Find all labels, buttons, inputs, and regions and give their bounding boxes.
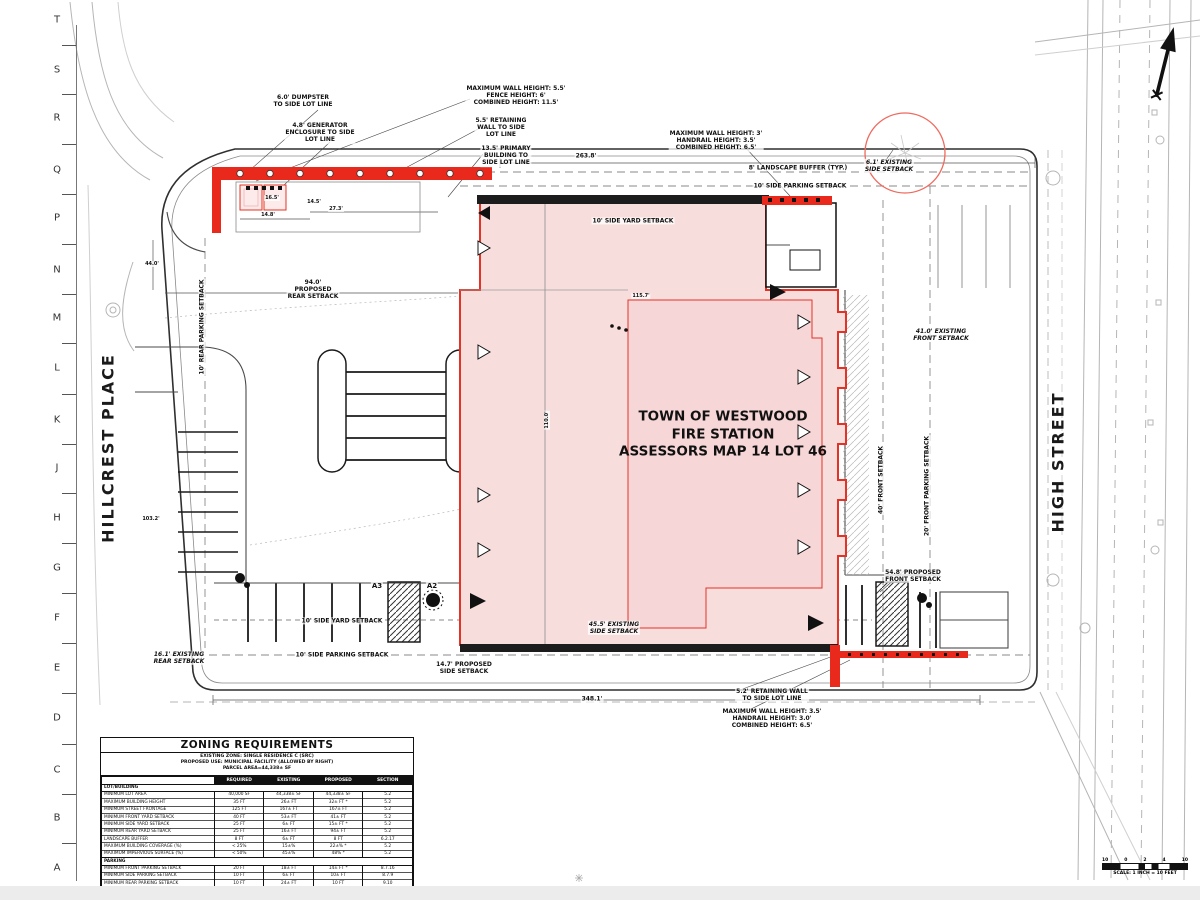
zoning-cell: 32± FT *: [313, 799, 363, 806]
zoning-requirements-table: ZONING REQUIREMENTS EXISTING ZONE: SINGL…: [100, 737, 414, 900]
ruler-letter: K: [54, 415, 61, 426]
zoning-cell: 6± FT: [264, 821, 314, 828]
ruler-tick: [62, 343, 76, 344]
ruler-tick: [62, 843, 76, 844]
scale-tick: 0: [1124, 858, 1127, 863]
zoning-cell: 14± FT *: [313, 865, 363, 872]
ruler-tick: [62, 294, 76, 295]
scale-tick: 10: [1182, 858, 1188, 863]
zoning-cell: 8 FT: [214, 836, 264, 843]
zoning-table-title: ZONING REQUIREMENTS: [101, 738, 413, 753]
zoning-cell: MINIMUM STREET FRONTAGE: [102, 806, 215, 813]
zoning-cell: MINIMUM LOT AREA: [102, 791, 215, 798]
ruler-letter: E: [54, 663, 60, 674]
zoning-cell: MINIMUM FRONT PARKING SETBACK: [102, 865, 215, 872]
ruler-tick: [62, 794, 76, 795]
zoning-cell: 5.2: [363, 791, 413, 798]
zoning-cell: 6± FT: [264, 872, 314, 879]
top-wall: [477, 195, 769, 204]
existing-building-outline: [628, 300, 822, 628]
building-label: TOWN OF WESTWOOD FIRE STATION ASSESSORS …: [593, 409, 853, 462]
ruler-letter: Q: [53, 165, 61, 176]
zoning-cell: 10 FT: [214, 872, 264, 879]
zoning-cell: MINIMUM FRONT YARD SETBACK: [102, 814, 215, 821]
zoning-cell: 5.2: [363, 843, 413, 850]
ruler-letter: R: [54, 113, 61, 124]
ruler-tick: [62, 543, 76, 544]
building-label-line2: FIRE STATION: [593, 426, 853, 444]
zoning-column-header: [102, 776, 215, 784]
zoning-cell: 5.2: [363, 814, 413, 821]
ruler-tick: [62, 94, 76, 95]
zoning-cell: 18± FT: [264, 865, 314, 872]
zoning-cell: 167± FT: [264, 806, 314, 813]
ruler-tick: [62, 394, 76, 395]
ruler-tick: [62, 444, 76, 445]
zoning-cell: 6.2.17: [363, 836, 413, 843]
zoning-table-header: REQUIREDEXISTINGPROPOSEDSECTION: [102, 776, 413, 784]
zoning-cell: 53± FT: [264, 814, 314, 821]
ruler-letter: D: [53, 713, 61, 724]
bottom-wall: [460, 644, 838, 652]
zoning-cell: MINIMUM SIDE YARD SETBACK: [102, 821, 215, 828]
ruler-tick: [62, 643, 76, 644]
building-label-line1: TOWN OF WESTWOOD: [593, 409, 853, 427]
zoning-cell: 20 FT: [214, 865, 264, 872]
ruler-letter: H: [53, 513, 61, 524]
ruler-tick: [62, 144, 76, 145]
scale-tick: 4: [1163, 858, 1166, 863]
scale-tick: 10: [1102, 858, 1108, 863]
zoning-cell: 5.2: [363, 806, 413, 813]
zoning-cell: 8.7.9: [363, 872, 413, 879]
red-retaining-wall-bottomright: [830, 645, 968, 687]
zoning-cell: 16± FT: [264, 828, 314, 835]
scale-bar-graphic: [1102, 863, 1188, 870]
ruler-letter: L: [54, 363, 60, 374]
ruler-letter: B: [54, 813, 61, 824]
sheet-edge-strip: [0, 886, 1200, 900]
zoning-cell: 40 FT: [214, 814, 264, 821]
ruler-letter: S: [54, 65, 60, 76]
zoning-cell: 35 FT: [214, 799, 264, 806]
red-retaining-wall-topright: [762, 196, 832, 205]
ruler-letter: A: [54, 863, 61, 874]
zoning-cell: LANDSCAPE BUFFER: [102, 836, 215, 843]
ruler-tick: [62, 593, 76, 594]
north-arrow-icon: [1148, 25, 1181, 101]
zoning-cell: 48% *: [313, 850, 363, 857]
zoning-cell: MINIMUM SIDE PARKING SETBACK: [102, 872, 215, 879]
zoning-table-body: LOT/BUILDINGMINIMUM LOT AREA40,000 SF44,…: [102, 784, 413, 900]
zoning-cell: 5.2: [363, 850, 413, 857]
zoning-cell: 25 FT: [214, 828, 264, 835]
ruler-line: [76, 25, 77, 881]
site-plan-sheet: TSRQPNMLKJHGFEDCBA HILLCREST PLACE HIGH …: [0, 0, 1200, 900]
zoning-cell: 26± FT: [264, 799, 314, 806]
zoning-cell: 5.2: [363, 799, 413, 806]
zoning-column-header: REQUIRED: [214, 776, 264, 784]
zoning-cell: 15± FT *: [313, 821, 363, 828]
ruler-letter: J: [56, 463, 59, 474]
ruler-tick: [62, 744, 76, 745]
zoning-subtitle-line: PARCEL AREA=44,338± SF: [101, 766, 413, 772]
scale-tick: 2: [1143, 858, 1146, 863]
zoning-table-subtitle: EXISTING ZONE: SINGLE RESIDENCE C (SRC)P…: [101, 753, 413, 776]
zoning-cell: MAXIMUM BUILDING COVERAGE (%): [102, 843, 215, 850]
ruler-letter: P: [54, 213, 60, 224]
zoning-section-header: LOT/BUILDING: [102, 784, 413, 791]
ruler-tick: [62, 45, 76, 46]
ruler-tick: [62, 693, 76, 694]
zoning-section-header: PARKING: [102, 858, 413, 865]
zoning-cell: 94± FT: [313, 828, 363, 835]
hillcrest-road-lines: [70, 2, 174, 705]
ruler-tick: [62, 194, 76, 195]
zoning-column-header: PROPOSED: [313, 776, 363, 784]
zoning-cell: 5.2: [363, 828, 413, 835]
zoning-cell: 8.7.16: [363, 865, 413, 872]
zoning-cell: MAXIMUM IMPERVIOUS SURFACE (%): [102, 850, 215, 857]
ruler-letter: T: [54, 15, 60, 26]
street-label-hillcrest: HILLCREST PLACE: [99, 353, 118, 543]
ruler-letter: F: [54, 613, 60, 624]
building-label-line3: ASSESSORS MAP 14 LOT 46: [593, 444, 853, 462]
zoning-cell: 8 FT: [313, 836, 363, 843]
zoning-column-header: SECTION: [363, 776, 413, 784]
generator-pad: [236, 182, 420, 232]
zoning-cell: 167± FT: [313, 806, 363, 813]
scale-bar: 1002410 SCALE: 1 INCH = 10 FEET: [1102, 858, 1188, 876]
zoning-cell: 44,338± SF: [313, 791, 363, 798]
zoning-cell: 15±%: [264, 843, 314, 850]
zoning-cell: 44,338± SF: [264, 791, 314, 798]
zoning-cell: < 50%: [214, 850, 264, 857]
zoning-column-header: EXISTING: [264, 776, 314, 784]
zoning-table-grid: REQUIREDEXISTINGPROPOSEDSECTION LOT/BUIL…: [101, 776, 413, 900]
zoning-cell: 6± FT: [264, 836, 314, 843]
zoning-cell: 25 FT: [214, 821, 264, 828]
zoning-cell: 5.2: [363, 821, 413, 828]
zoning-cell: 10± FT: [313, 872, 363, 879]
existing-shed: [766, 203, 836, 287]
zoning-cell: 41± FT: [313, 814, 363, 821]
ruler-tick: [62, 244, 76, 245]
ruler-letter: C: [54, 765, 61, 776]
scale-bar-label: SCALE: 1 INCH = 10 FEET: [1102, 871, 1188, 876]
street-label-high: HIGH STREET: [1049, 392, 1068, 533]
ruler-letter: G: [53, 563, 61, 574]
ruler-letter: N: [53, 265, 60, 276]
ruler-tick: [62, 493, 76, 494]
zoning-cell: 45±%: [264, 850, 314, 857]
zoning-cell: MAXIMUM BUILDING HEIGHT: [102, 799, 215, 806]
zoning-cell: 125 FT: [214, 806, 264, 813]
zoning-cell: MINIMUM REAR YARD SETBACK: [102, 828, 215, 835]
zoning-cell: 40,000 SF: [214, 791, 264, 798]
zoning-cell: < 25%: [214, 843, 264, 850]
zoning-cell: 22±% *: [313, 843, 363, 850]
ruler-letter: M: [53, 313, 62, 324]
